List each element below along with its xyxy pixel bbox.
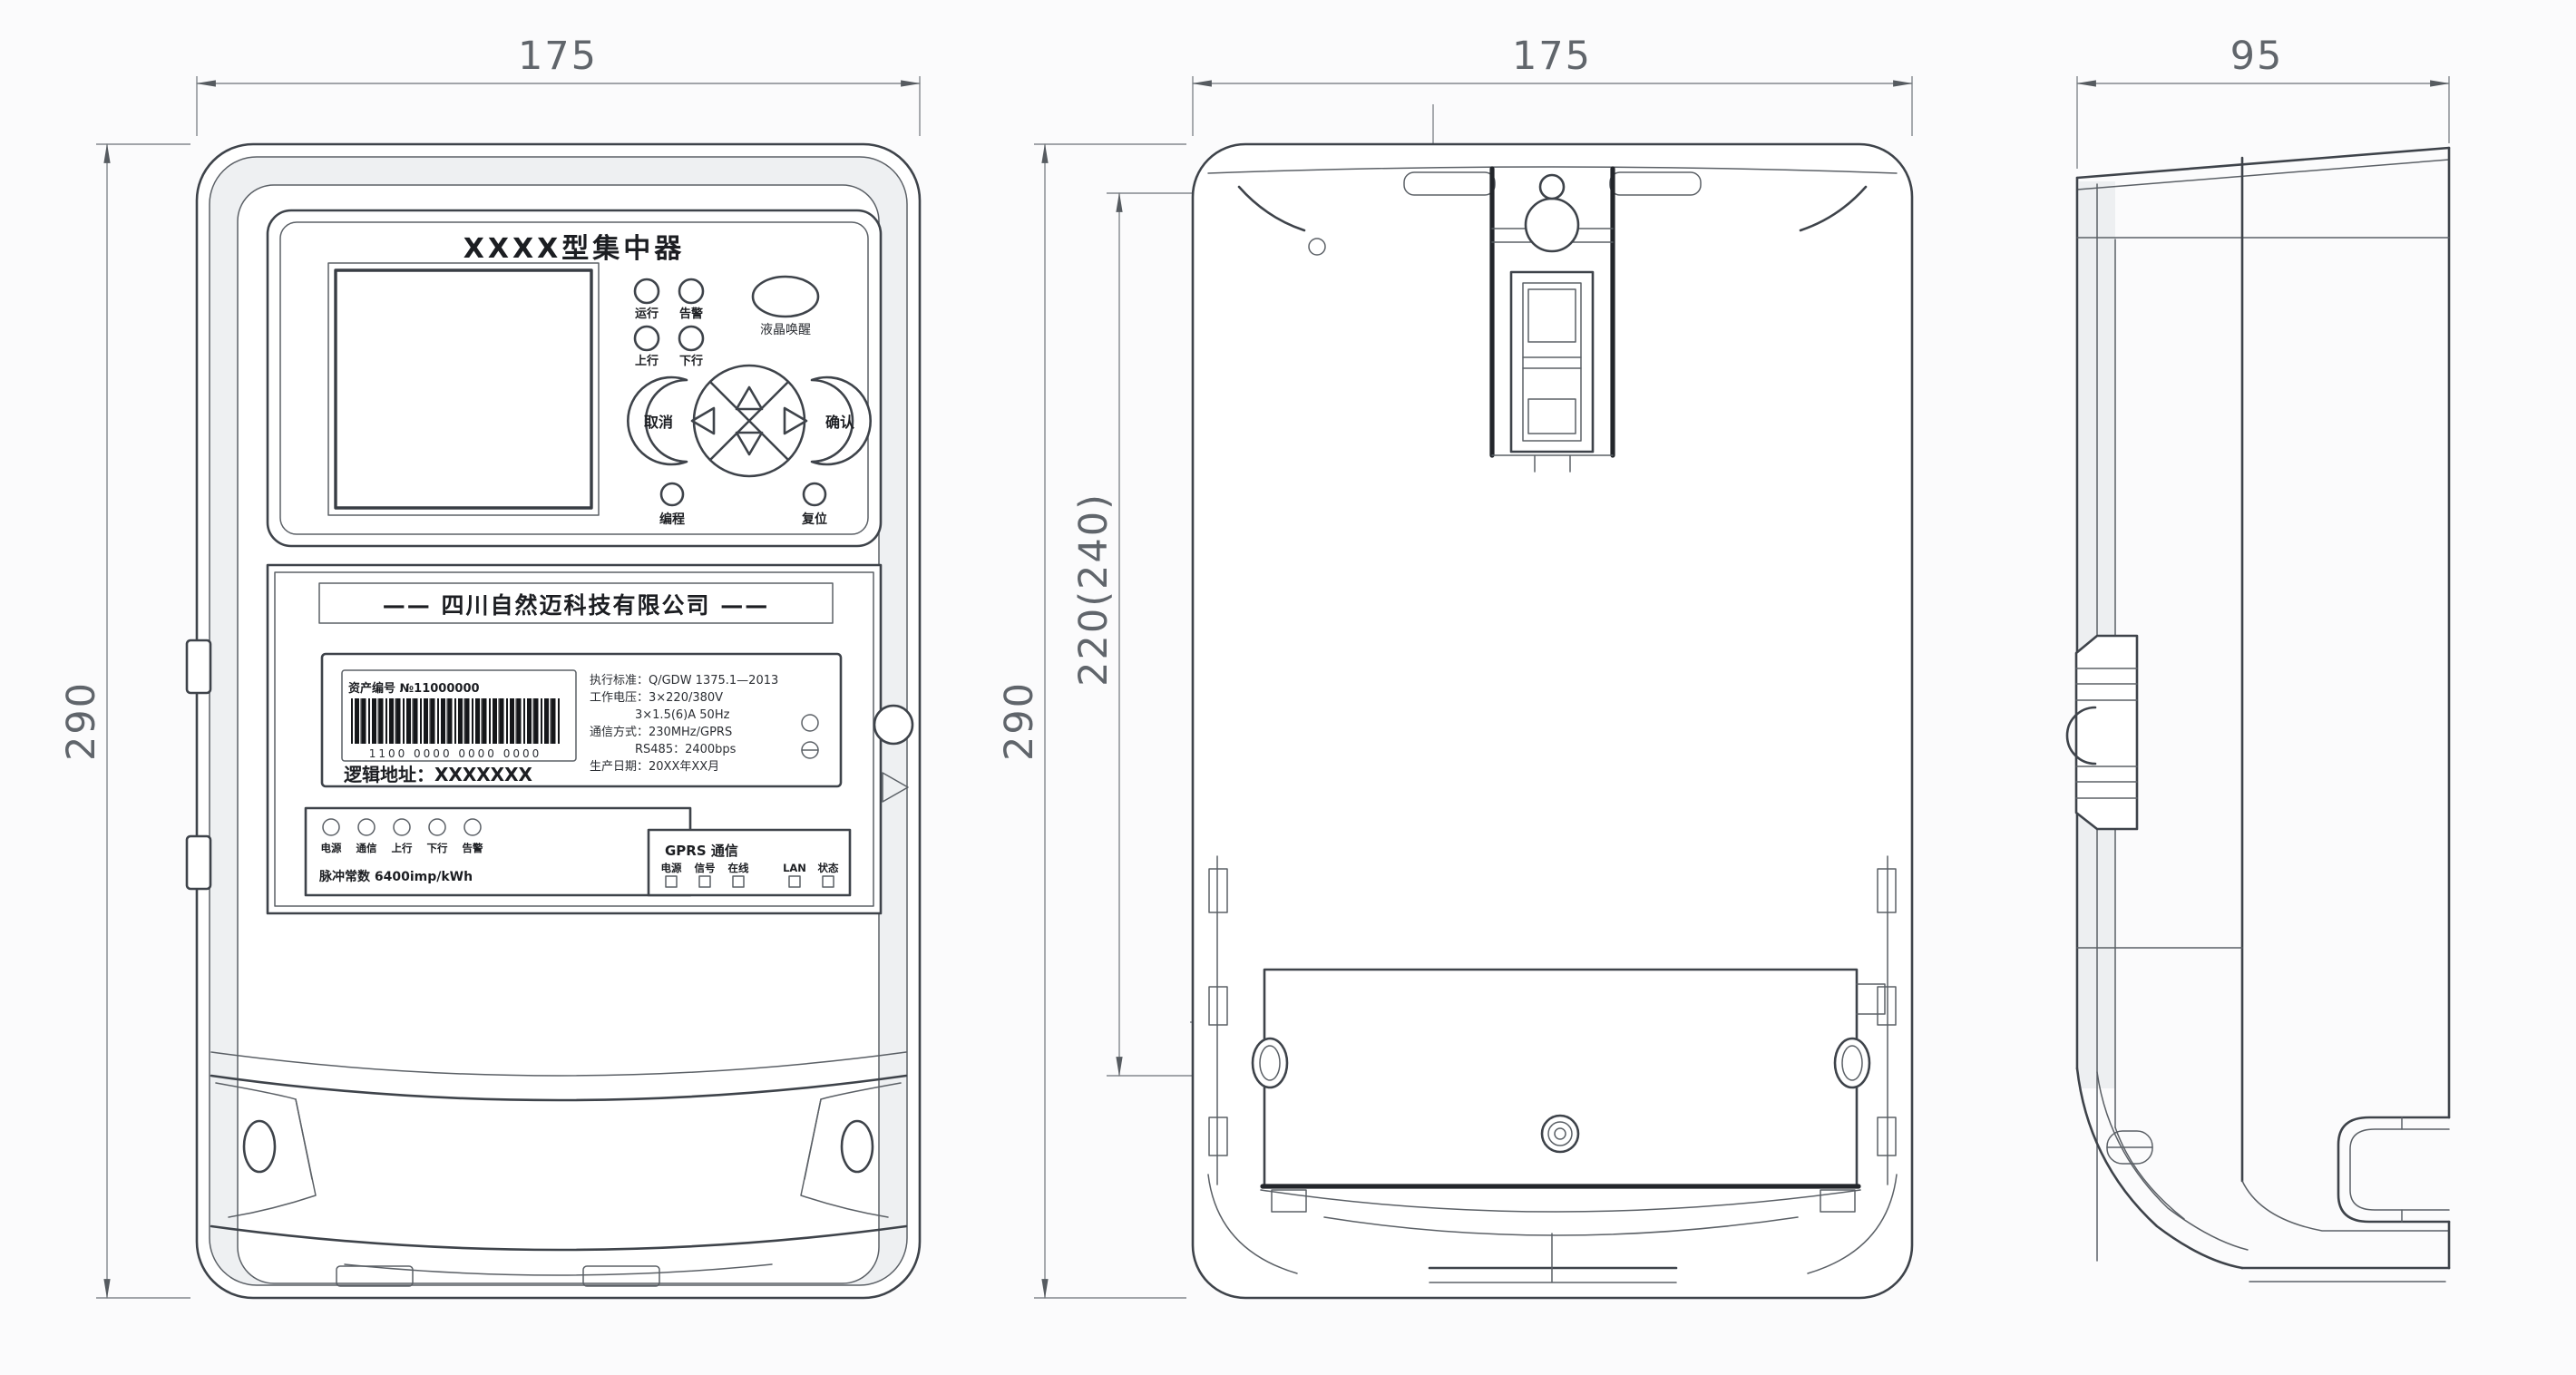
- cancel-button-label: 取消: [644, 414, 673, 431]
- led-uplink-label: 上行: [635, 354, 659, 368]
- company-name: —— 四川自然迈科技有限公司 ——: [383, 592, 769, 619]
- hinge-tab: [187, 836, 210, 889]
- comm-label: 电源: [661, 862, 682, 874]
- led-run-label: 运行: [635, 307, 659, 321]
- comm-label: 信号: [695, 862, 716, 874]
- dim-back-inner-height: 220(240): [1071, 492, 1117, 687]
- spec-line: 工作电压：3×220/380V: [590, 691, 723, 705]
- indicator-label: 下行: [427, 842, 448, 854]
- cover-screw-hole: [842, 1121, 873, 1172]
- direction-pad: [692, 366, 806, 476]
- indicator-label: 通信: [356, 842, 377, 854]
- mounting-plate-face: [1264, 970, 1857, 1186]
- barcode: [350, 698, 561, 744]
- indicator-label: 告警: [463, 842, 483, 854]
- keyhole-small: [1540, 175, 1564, 199]
- reset-button-label: 复位: [801, 512, 827, 527]
- spec-line: 通信方式：230MHz/GPRS: [590, 725, 732, 739]
- confirm-button-label: 确认: [825, 414, 855, 431]
- cover-screw-hole: [244, 1121, 275, 1172]
- concentrator-dimension-drawing: 175 290 175 290 220(240) 10 150 5 9: [0, 0, 2576, 1375]
- wake-button: [753, 277, 818, 317]
- spec-line: 生产日期：20XX年XX月: [590, 760, 719, 774]
- comm-label: 状态: [818, 862, 839, 874]
- pulse-constant-note: 脉冲常数 6400imp/kWh: [318, 869, 473, 884]
- led-run: [635, 279, 659, 303]
- dim-front-width: 175: [518, 34, 598, 79]
- comm-panel-title: GPRS 通信: [665, 843, 738, 859]
- comm-label: 在线: [728, 862, 749, 874]
- dim-side-width: 95: [2230, 34, 2284, 79]
- dim-front-height: 290: [59, 681, 104, 761]
- led-alarm-label: 告警: [679, 307, 703, 321]
- spec-line: 3×1.5(6)A 50Hz: [635, 708, 730, 722]
- led-uplink: [635, 327, 659, 350]
- indicator-label: 上行: [392, 842, 413, 854]
- program-button-label: 编程: [659, 512, 685, 527]
- led-downlink: [679, 327, 703, 350]
- led-downlink-label: 下行: [679, 354, 703, 368]
- seal-latch: [874, 706, 912, 744]
- wake-button-label: 液晶唤醒: [760, 322, 811, 337]
- side-latch: [2067, 636, 2137, 829]
- hinge-tab: [187, 640, 210, 693]
- logic-address: 逻辑地址：XXXXXXX: [344, 764, 533, 785]
- led-alarm: [679, 279, 703, 303]
- drawing-canvas: 175 290 175 290 220(240) 10 150 5 9: [0, 0, 2576, 1375]
- program-button: [661, 483, 683, 505]
- dim-back-height: 290: [997, 681, 1042, 761]
- spec-line: RS485：2400bps: [635, 743, 737, 756]
- reset-button: [804, 483, 825, 505]
- comm-label: LAN: [783, 862, 806, 874]
- front-view: XXXX型集中器 运行 告警 上行 下行 液晶唤醒 取消: [187, 144, 920, 1298]
- back-view: [1193, 144, 1912, 1298]
- barcode-caption: 资产编号 №11000000: [348, 681, 480, 696]
- indicator-label: 电源: [321, 842, 342, 854]
- dim-back-width: 175: [1512, 34, 1592, 79]
- model-title: XXXX型集中器: [463, 233, 686, 265]
- spec-line: 执行标准：Q/GDW 1375.1—2013: [590, 674, 778, 687]
- barcode-number: 1100 0000 0000 0000: [369, 747, 542, 760]
- keyhole-large: [1526, 199, 1578, 251]
